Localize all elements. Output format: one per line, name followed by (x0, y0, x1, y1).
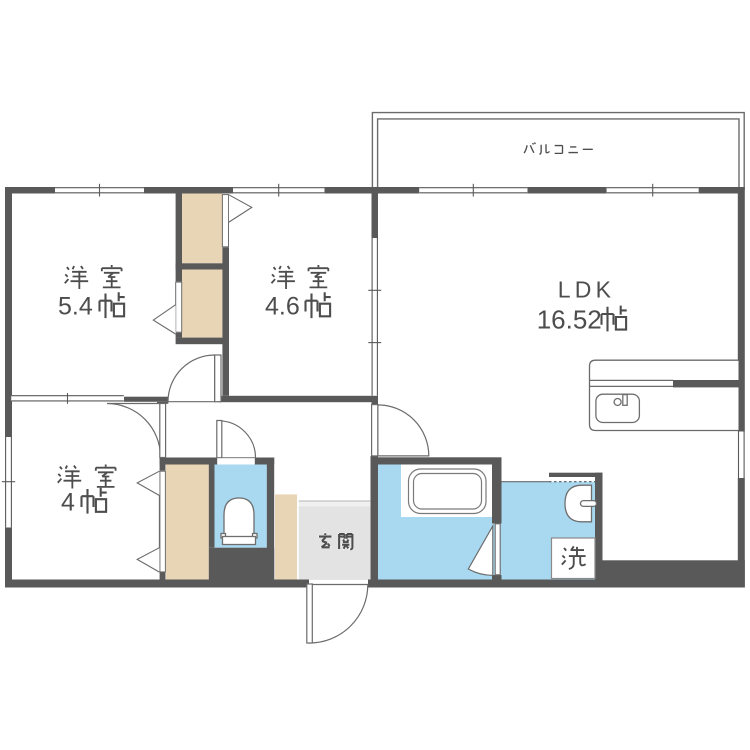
svg-text:4: 4 (61, 489, 75, 517)
svg-text:4.6: 4.6 (265, 293, 300, 321)
svg-text:LDK: LDK (558, 276, 615, 302)
svg-text:5.4: 5.4 (58, 293, 93, 321)
svg-text:16.52: 16.52 (537, 304, 602, 334)
